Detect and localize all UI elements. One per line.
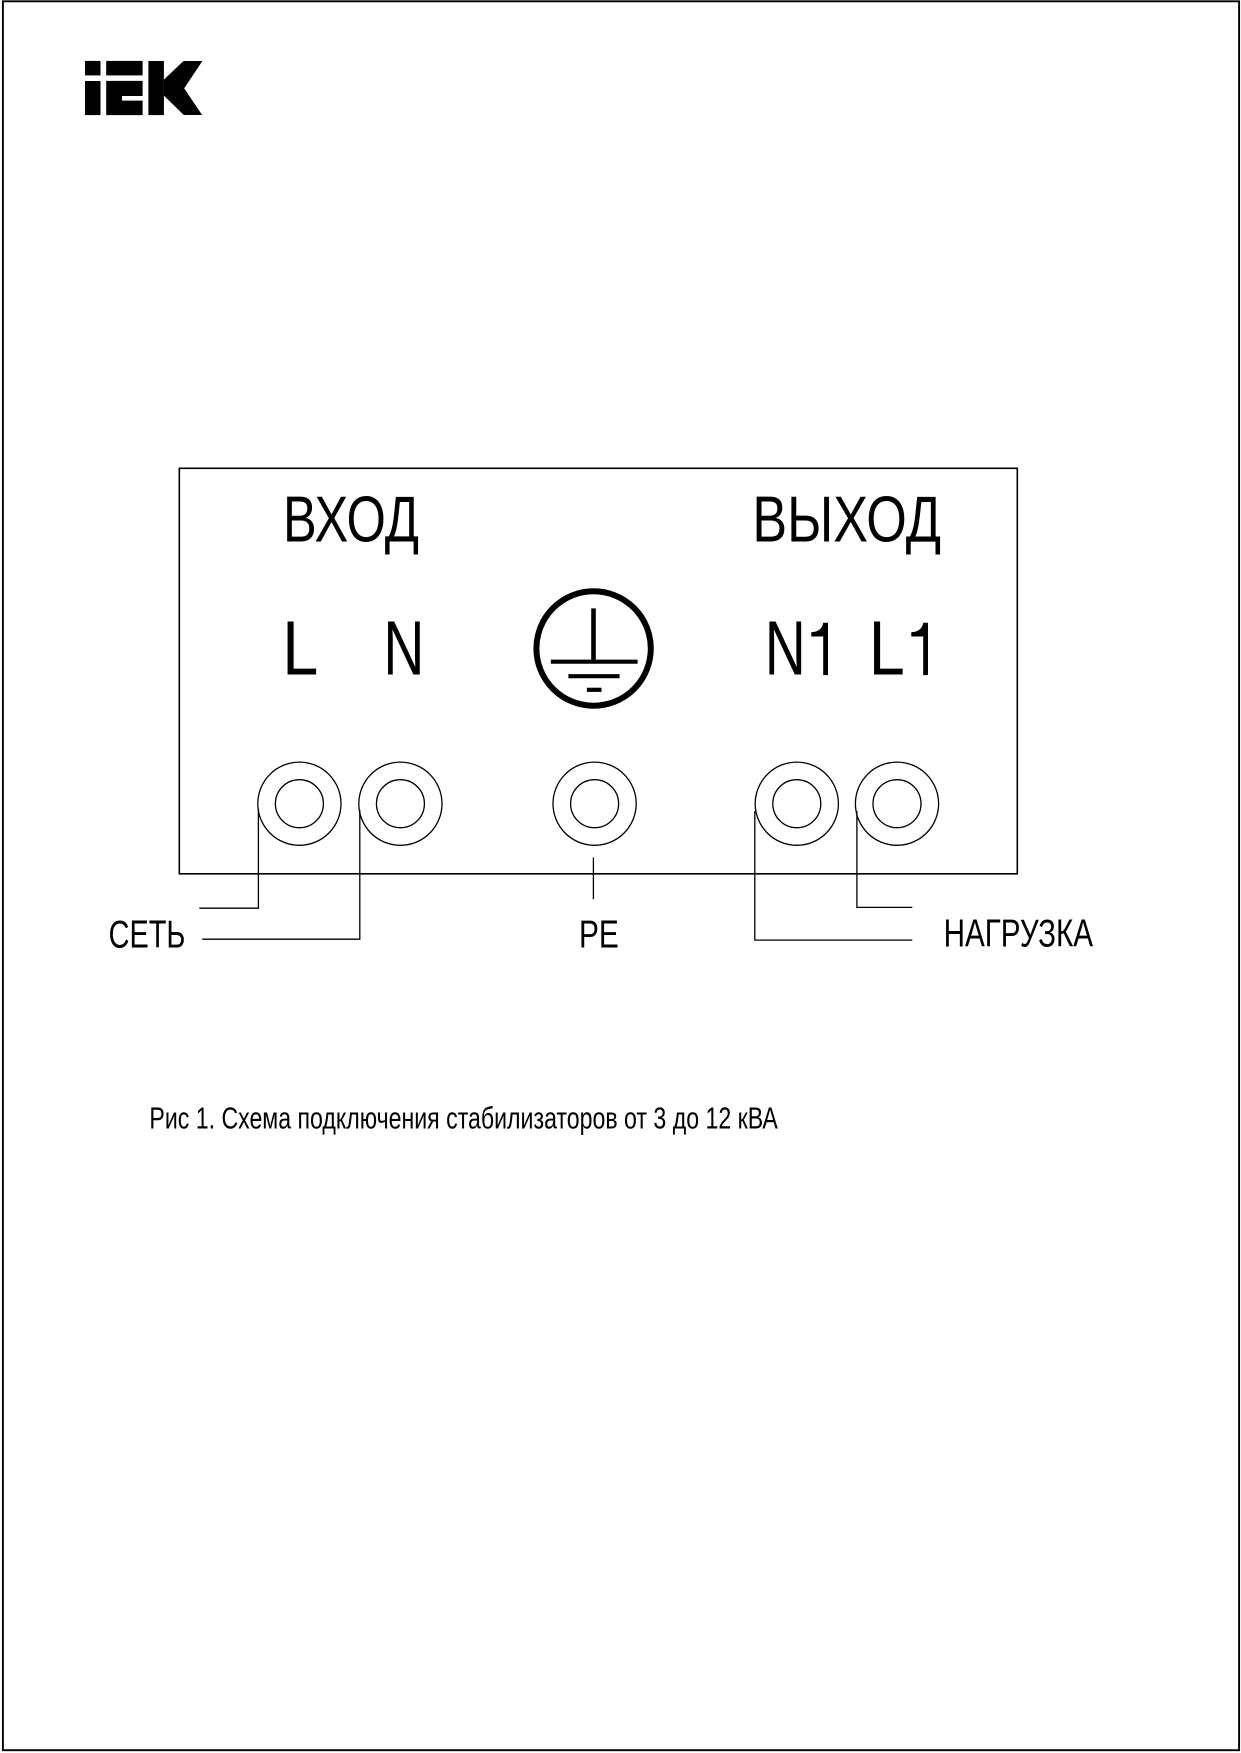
svg-text:Рис 1. Схема подключения стаби: Рис 1. Схема подключения стабилизаторов … bbox=[149, 1100, 778, 1135]
svg-text:N: N bbox=[383, 606, 424, 692]
svg-text:РЕ: РЕ bbox=[579, 914, 619, 957]
svg-text:L: L bbox=[869, 605, 905, 692]
svg-text:N: N bbox=[765, 606, 806, 692]
svg-text:L: L bbox=[282, 605, 318, 692]
svg-text:СЕТЬ: СЕТЬ bbox=[109, 913, 186, 956]
svg-text:ВХОД: ВХОД bbox=[283, 485, 419, 556]
svg-text:НАГРУЗКА: НАГРУЗКА bbox=[944, 913, 1094, 956]
svg-text:ВЫХОД: ВЫХОД bbox=[752, 484, 941, 556]
